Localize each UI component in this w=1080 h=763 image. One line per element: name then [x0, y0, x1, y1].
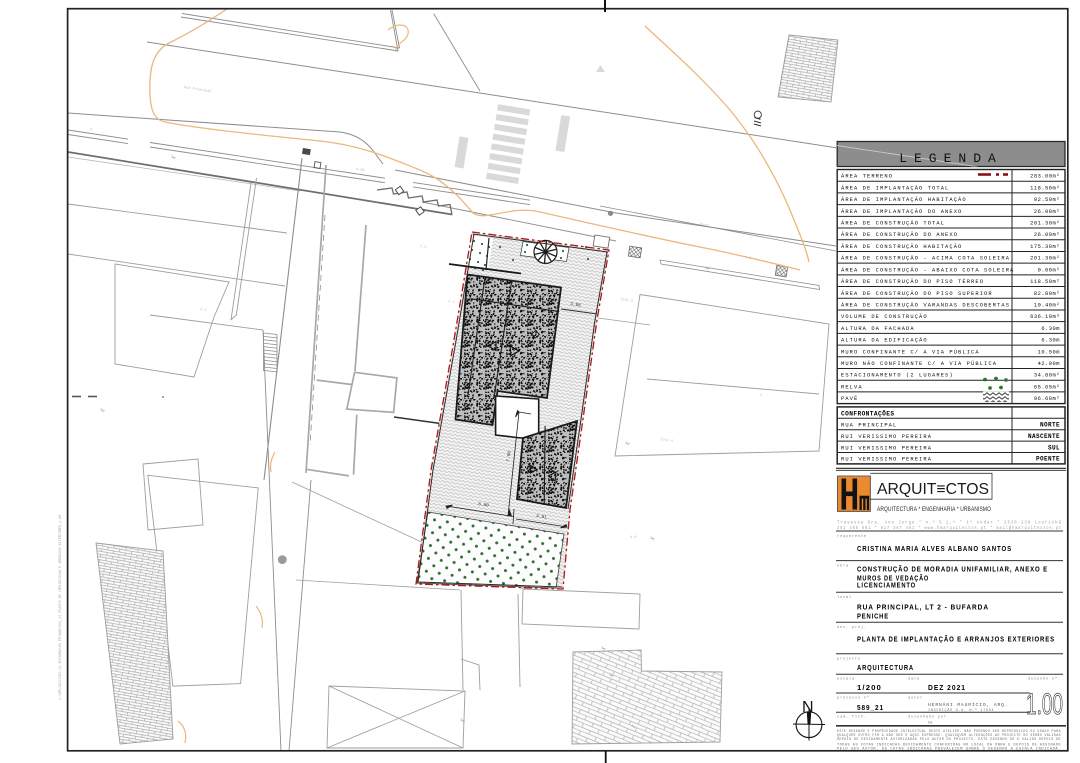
svg-text:SUL: SUL [1048, 444, 1060, 451]
svg-text:ARQUIT≡CTOS: ARQUIT≡CTOS [877, 481, 989, 498]
svg-text:ÁREA DE CONSTRUÇÃO - ACIMA COT: ÁREA DE CONSTRUÇÃO - ACIMA COTA SOLEIRA [841, 255, 1010, 262]
svg-text:636.10m³: 636.10m³ [1030, 314, 1060, 320]
svg-text:requerente: requerente [837, 534, 867, 539]
svg-text:local: local [837, 595, 852, 600]
svg-text:data: data [908, 677, 920, 682]
svg-text:cam. fich.: cam. fich. [837, 715, 867, 720]
svg-text:C:\HM\2021\589_21 BUFARDA\04 P: C:\HM\2021\589_21 BUFARDA\04 PE\DWG\589_… [58, 515, 63, 700]
svg-text:NASCENTE: NASCENTE [1028, 433, 1060, 440]
svg-text:ALTURA DA EDIFICAÇÃO: ALTURA DA EDIFICAÇÃO [841, 337, 928, 344]
svg-text:CRISTINA MARIA ALVES ALBANO SA: CRISTINA MARIA ALVES ALBANO SANTOS [857, 544, 1012, 553]
svg-text:ÁREA DE CONSTRUÇÃO TOTAL: ÁREA DE CONSTRUÇÃO TOTAL [841, 220, 945, 227]
svg-text:MURO CONFINANTE C/ A VIA PÚBLI: MURO CONFINANTE C/ A VIA PÚBLICA [841, 348, 980, 355]
svg-text:65.65m²: 65.65m² [1034, 384, 1060, 390]
svg-text:ÁREA DE CONSTRUÇÃO - ABAIXO CO: ÁREA DE CONSTRUÇÃO - ABAIXO COTA SOLEIRA [841, 266, 1014, 273]
svg-text:1/200: 1/200 [857, 683, 882, 692]
svg-text:DEPOIS DE DEVIDAMENTE AUTORIZA: DEPOIS DE DEVIDAMENTE AUTORIZADAS PELO A… [837, 737, 1061, 742]
svg-text:ALTURA DA FACHADA: ALTURA DA FACHADA [841, 326, 915, 332]
svg-text:processo nº: processo nº [837, 696, 870, 701]
svg-text:4.0: 4.0 [630, 536, 636, 540]
svg-text:ESTACIONAMENTO (2 LUGARES): ESTACIONAMENTO (2 LUGARES) [841, 373, 954, 379]
svg-text:118.50m²: 118.50m² [1030, 185, 1060, 191]
svg-text:desenhado por: desenhado por [908, 715, 947, 720]
svg-text:CONSTRUÇÃO DE MORADIA UNIFAMIL: CONSTRUÇÃO DE MORADIA UNIFAMILIAR, ANEXO… [857, 565, 1048, 574]
svg-text:261 469 681 * 917 367 461 * w: 261 469 681 * 917 367 461 * www.hmarquit… [837, 526, 1062, 531]
svg-text:ARQUITECTURA * ENGENHARIA * UR: ARQUITECTURA * ENGENHARIA * URBANISMO [877, 506, 991, 513]
svg-text:RUI VERISSIMO PEREIRA: RUI VERISSIMO PEREIRA [841, 457, 932, 463]
svg-text:VOLUME DE CONSTRUÇÃO: VOLUME DE CONSTRUÇÃO [841, 313, 928, 320]
svg-text:HERNÂNI MAURÍCIO, ARQ.: HERNÂNI MAURÍCIO, ARQ. [928, 701, 1008, 708]
svg-text:82.80m²: 82.80m² [1034, 291, 1060, 297]
svg-text:34.80m²: 34.80m² [1034, 373, 1060, 379]
svg-text:2: 2 [760, 394, 762, 398]
svg-text:42.00m: 42.00m [1038, 361, 1060, 367]
svg-text:10.40m²: 10.40m² [1034, 302, 1060, 308]
svg-text:1.00: 1.00 [1026, 688, 1063, 721]
svg-text:ÁREA TERRENO: ÁREA TERRENO [841, 173, 893, 180]
svg-text:6.30m: 6.30m [1041, 326, 1060, 332]
svg-text:CONFRONTAÇÕES: CONFRONTAÇÕES [841, 410, 894, 417]
svg-text:projecto: projecto [837, 657, 861, 662]
svg-text:201.30m²: 201.30m² [1030, 221, 1060, 227]
svg-text:6.30m: 6.30m [1041, 338, 1060, 344]
svg-text:escala: escala [837, 677, 855, 682]
svg-text:ÁREA DE IMPLANTAÇÃO DO ANEXO: ÁREA DE IMPLANTAÇÃO DO ANEXO [841, 208, 962, 215]
svg-text:ÁREA DE IMPLANTAÇÃO TOTAL: ÁREA DE IMPLANTAÇÃO TOTAL [841, 184, 949, 191]
svg-text:ÁREA DE CONSTRUÇÃO DO PISO SUP: ÁREA DE CONSTRUÇÃO DO PISO SUPERIOR [841, 290, 993, 297]
svg-text:obra: obra [837, 564, 849, 569]
svg-text:26.00m²: 26.00m² [1034, 232, 1060, 238]
svg-text:589_21: 589_21 [857, 703, 884, 712]
svg-text:LEGENDA: LEGENDA [899, 151, 1003, 166]
svg-text:autor: autor [908, 696, 923, 701]
svg-text:hm: hm [928, 721, 932, 726]
svg-text:RUI VERISSIMO PEREIRA: RUI VERISSIMO PEREIRA [841, 434, 932, 440]
svg-text:RELVA: RELVA [841, 384, 863, 390]
svg-text:ÁREA DE CONSTRUÇÃO VARANDAS DE: ÁREA DE CONSTRUÇÃO VARANDAS DESCOBERTAS [841, 301, 1010, 308]
svg-text:PENICHE: PENICHE [857, 612, 889, 621]
svg-text:LICENCIAMENTO: LICENCIAMENTO [857, 581, 916, 590]
svg-text:RUA PRINCIPAL: RUA PRINCIPAL [841, 423, 897, 429]
svg-text:ARQUITECTURA: ARQUITECTURA [857, 663, 914, 672]
svg-text:175.30m²: 175.30m² [1030, 244, 1060, 250]
svg-text:201.30m²: 201.30m² [1030, 256, 1060, 262]
svg-text:ÁREA DE CONSTRUÇÃO HABITAÇÃO: ÁREA DE CONSTRUÇÃO HABITAÇÃO [841, 243, 962, 250]
svg-text:118.50m²: 118.50m² [1030, 279, 1060, 285]
svg-text:PLANTA DE IMPLANTAÇÃO E ARRANJ: PLANTA DE IMPLANTAÇÃO E ARRANJOS EXTERIO… [857, 635, 1055, 644]
svg-text:ÁREA DE CONSTRUÇÃO DO PISO TÉR: ÁREA DE CONSTRUÇÃO DO PISO TÉRREO [841, 278, 984, 285]
svg-text:96.60m²: 96.60m² [1034, 396, 1060, 402]
svg-text:des. proj.: des. proj. [837, 625, 867, 630]
svg-text:desenho nº: desenho nº [1028, 677, 1058, 682]
svg-text:10.50m: 10.50m [1038, 349, 1060, 355]
svg-text:POENTE: POENTE [1036, 456, 1060, 463]
svg-text:DEZ 2021: DEZ 2021 [928, 683, 966, 692]
svg-text:RUA PRINCIPAL, LT 2 - BUFARDA: RUA PRINCIPAL, LT 2 - BUFARDA [857, 603, 989, 612]
svg-text:NORTE: NORTE [1040, 422, 1060, 429]
svg-text:PAVÉ: PAVÉ [841, 395, 858, 402]
svg-text:92.50m²: 92.50m² [1034, 197, 1060, 203]
svg-text:283.00m²: 283.00m² [1030, 174, 1060, 180]
svg-text:0.00m²: 0.00m² [1038, 267, 1060, 273]
svg-text:RUI VERISSIMO PEREIRA: RUI VERISSIMO PEREIRA [841, 445, 932, 451]
svg-text:26.00m²: 26.00m² [1034, 209, 1060, 215]
svg-text:ÁREA DE IMPLANTAÇÃO HABITAÇÃO: ÁREA DE IMPLANTAÇÃO HABITAÇÃO [841, 196, 967, 203]
svg-text:MURO NÃO CONFINANTE C/ A VIA P: MURO NÃO CONFINANTE C/ A VIA PÚBLICA [841, 360, 997, 367]
svg-text:ÁREA DE CONSTRUÇÃO DO ANEXO: ÁREA DE CONSTRUÇÃO DO ANEXO [841, 231, 958, 238]
